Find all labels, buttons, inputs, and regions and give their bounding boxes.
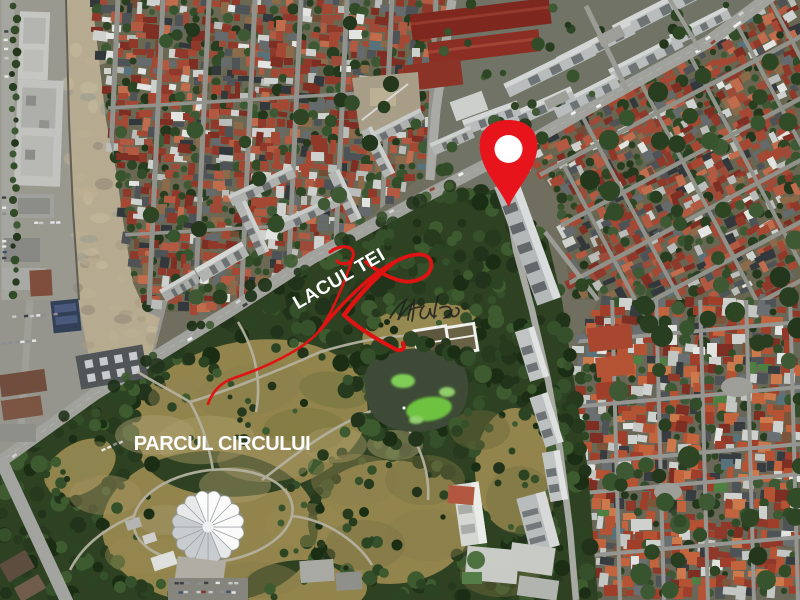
svg-text:PARCUL CIRCULUI: PARCUL CIRCULUI: [134, 433, 311, 455]
